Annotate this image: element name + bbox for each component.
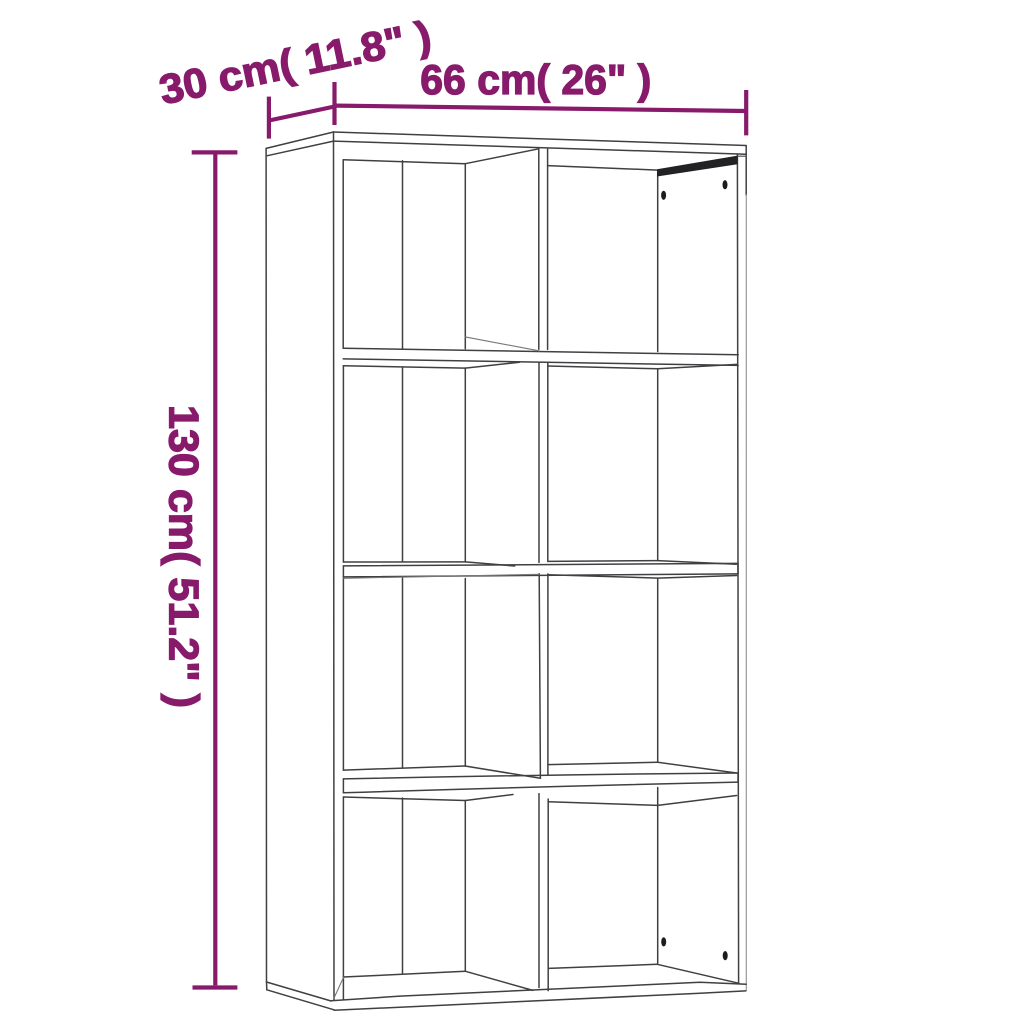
- svg-text:130 cm( 51.2" ): 130 cm( 51.2" ): [161, 405, 207, 708]
- svg-text:30 cm( 11.8" ): 30 cm( 11.8" ): [155, 12, 435, 113]
- svg-text:66 cm( 26" ): 66 cm( 26" ): [420, 57, 651, 103]
